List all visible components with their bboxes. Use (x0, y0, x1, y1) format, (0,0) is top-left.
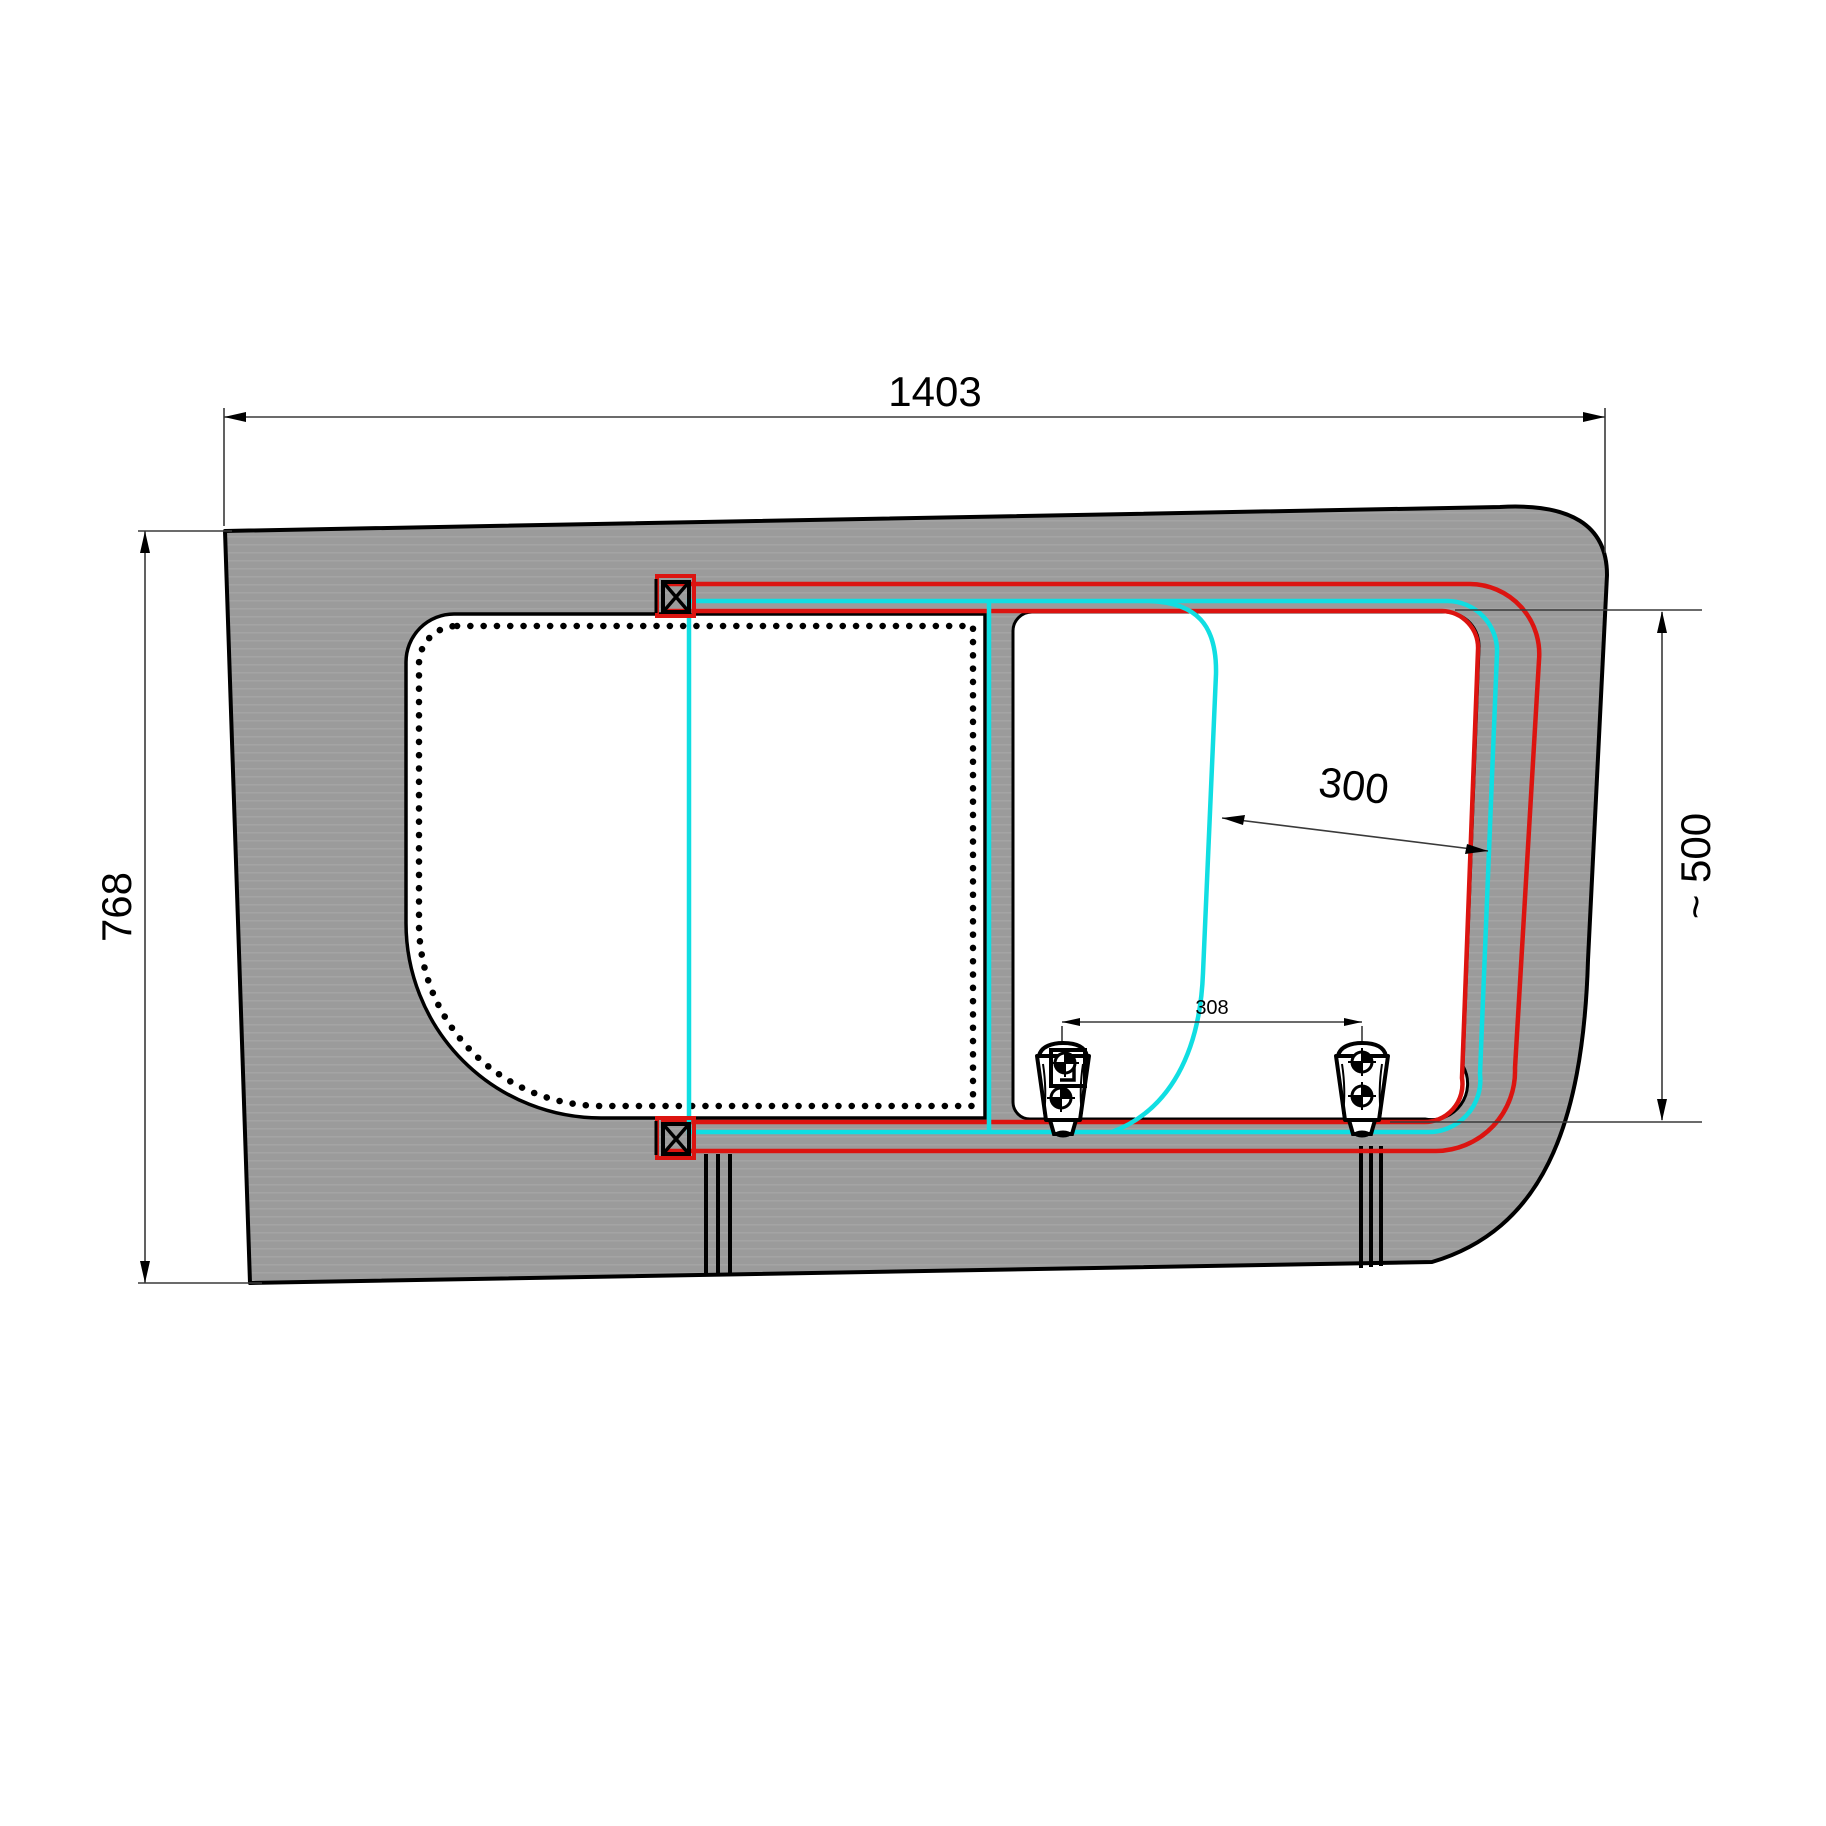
fixing-marker-top (656, 576, 694, 616)
drawing-canvas: 1403 768 ~ 500 300 308 (0, 0, 1826, 1826)
dim-latch-spacing: 308 (1195, 997, 1228, 1019)
fixing-marker-bottom (656, 1118, 694, 1158)
dim-overall-height: 768 (93, 872, 140, 942)
dim-overall-width: 1403 (888, 368, 981, 415)
left-aperture (406, 614, 985, 1118)
right-aperture (1013, 612, 1479, 1120)
dim-window-height: ~ 500 (1672, 813, 1719, 919)
technical-drawing: 1403 768 ~ 500 300 308 (0, 0, 1826, 1826)
dim-opening-width: 300 (1316, 758, 1391, 813)
